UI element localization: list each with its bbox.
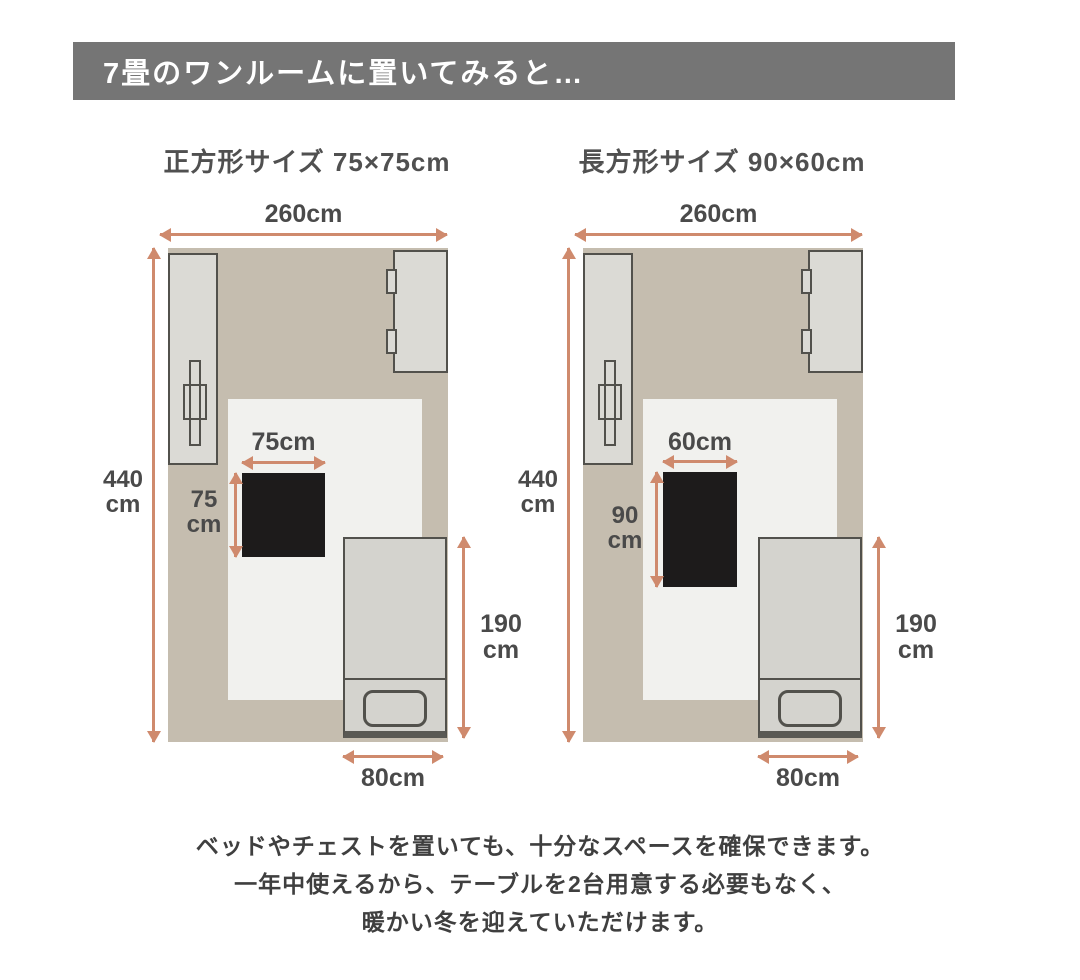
room-height-arrow <box>567 248 570 742</box>
diagram-title: 正方形サイズ 75×75cm <box>95 142 519 179</box>
table-width-arrow <box>663 460 737 463</box>
wardrobe-handle-cross <box>598 384 622 420</box>
pillow <box>363 690 427 727</box>
header-banner: 7畳のワンルームに置いてみると… <box>73 42 955 100</box>
table-width-label: 60cm <box>663 428 737 457</box>
chest-drawer-handle <box>801 329 812 354</box>
chest <box>393 250 448 373</box>
pillow <box>778 690 842 727</box>
bed-divider-line <box>760 678 860 680</box>
description-text: ベッドやチェストを置いても、十分なスペースを確保できます。 一年中使えるから、テ… <box>0 827 1080 941</box>
bed <box>758 537 862 738</box>
wardrobe <box>168 253 218 465</box>
chest-drawer-handle <box>386 269 397 294</box>
bed-length-label: 190 cm <box>885 611 947 663</box>
header-title: 7畳のワンルームに置いてみると… <box>73 50 584 92</box>
kotatsu-table <box>663 472 737 587</box>
diagram-title: 長方形サイズ 90×60cm <box>510 142 934 179</box>
room-floor <box>583 248 863 742</box>
room-width-arrow <box>160 233 447 236</box>
bed-width-arrow <box>758 755 858 758</box>
room-height-arrow <box>152 248 155 742</box>
table-width-label: 75cm <box>242 428 325 457</box>
bed <box>343 537 447 738</box>
bed-width-arrow <box>343 755 443 758</box>
bed-length-arrow <box>877 537 880 738</box>
description-line: 暖かい冬を迎えていただけます。 <box>0 903 1080 941</box>
room-height-label: 440 cm <box>512 467 564 517</box>
bed-divider-line <box>345 678 445 680</box>
bed-width-label: 80cm <box>758 764 858 793</box>
room-width-label: 260cm <box>575 200 862 229</box>
table-height-label: 90 cm <box>599 503 651 553</box>
floorplan-square-table: 正方形サイズ 75×75cm 260cm 440 cm 75cm <box>95 140 535 812</box>
chest <box>808 250 863 373</box>
chest-drawer-handle <box>386 329 397 354</box>
wardrobe <box>583 253 633 465</box>
table-height-arrow <box>655 472 658 587</box>
floorplan-rect-table: 長方形サイズ 90×60cm 260cm 440 cm 60cm <box>510 140 950 812</box>
kotatsu-table <box>242 473 325 557</box>
table-width-arrow <box>242 461 325 464</box>
room-layout-infographic: 7畳のワンルームに置いてみると… 正方形サイズ 75×75cm 260cm 44… <box>0 0 1080 980</box>
bed-width-label: 80cm <box>343 764 443 793</box>
room-width-arrow <box>575 233 862 236</box>
room-height-label: 440 cm <box>97 467 149 517</box>
chest-drawer-handle <box>801 269 812 294</box>
bed-length-arrow <box>462 537 465 738</box>
description-line: ベッドやチェストを置いても、十分なスペースを確保できます。 <box>0 827 1080 865</box>
table-height-label: 75 cm <box>178 487 230 537</box>
description-line: 一年中使えるから、テーブルを2台用意する必要もなく、 <box>0 865 1080 903</box>
wardrobe-handle-cross <box>183 384 207 420</box>
room-width-label: 260cm <box>160 200 447 229</box>
table-height-arrow <box>234 473 237 557</box>
